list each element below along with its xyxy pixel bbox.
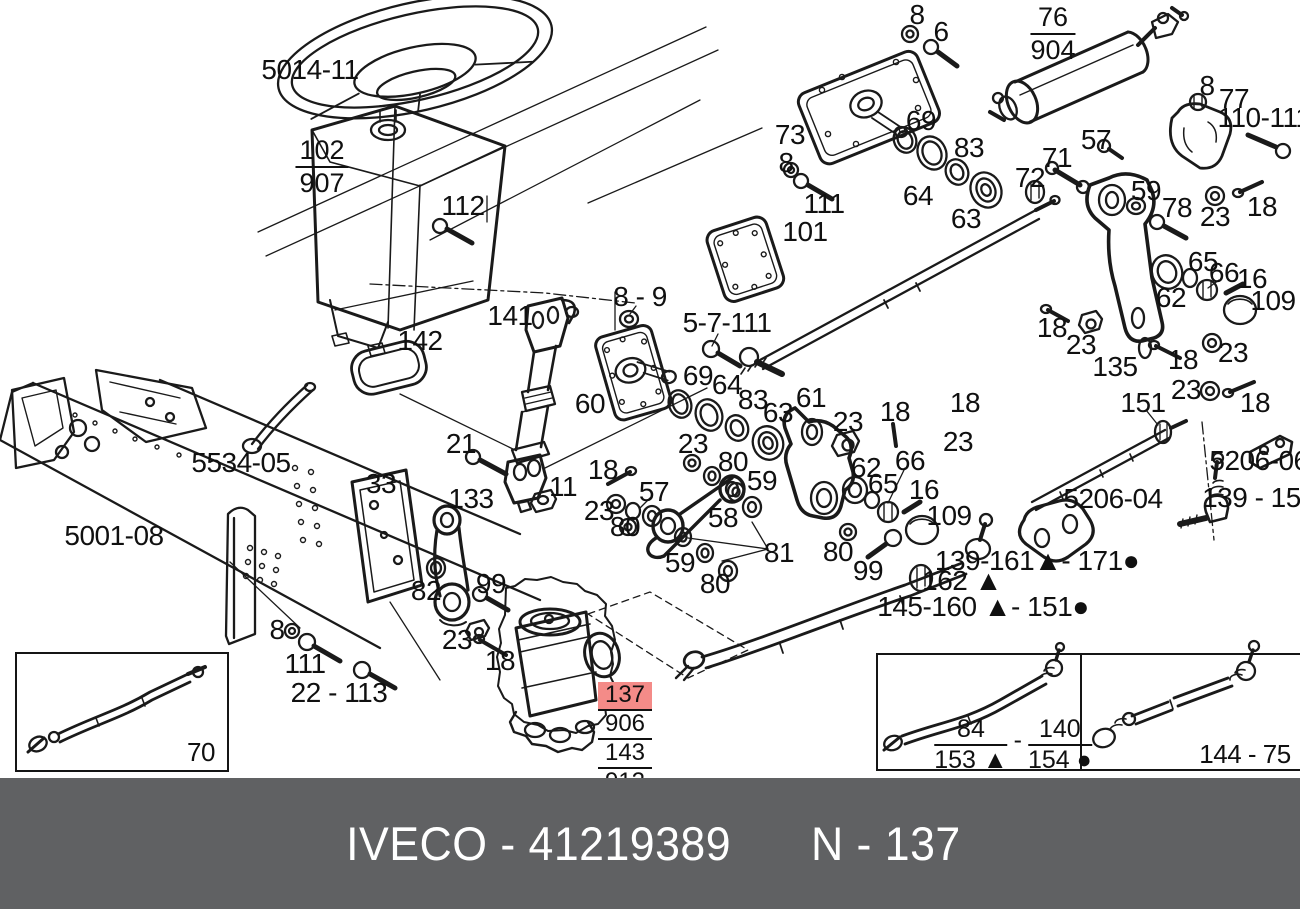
- part-label: 59: [747, 467, 777, 495]
- part-label: 23: [833, 408, 863, 436]
- part-label: 69: [683, 362, 713, 390]
- inset-part-fraction: 84 153 ▲ - 140 154 ●: [934, 716, 1092, 774]
- part-label: 73: [775, 121, 805, 149]
- part-label: 5206-06: [1209, 447, 1300, 475]
- fraction-denominator: 904: [1030, 35, 1075, 64]
- part-number-row: 143: [598, 740, 652, 769]
- part-label: 6: [933, 18, 948, 46]
- part-label: 59: [665, 549, 695, 577]
- part-label: 80: [610, 513, 640, 541]
- part-label: 141: [487, 302, 532, 330]
- part-label: 59: [1131, 177, 1161, 205]
- part-label: 18: [1240, 389, 1270, 417]
- part-label: 18: [1247, 193, 1277, 221]
- part-label: 5-7-111: [683, 309, 772, 337]
- fraction-numerator: 76: [1030, 3, 1075, 35]
- part-label: 135: [1092, 353, 1137, 381]
- part-label: 18: [1037, 314, 1067, 342]
- part-label: 63: [763, 399, 793, 427]
- part-label: 18: [1168, 346, 1198, 374]
- part-label: 60: [575, 390, 605, 418]
- part-label: 5014-11: [261, 56, 358, 84]
- part-label: 99: [853, 557, 883, 585]
- part-label: 80: [700, 570, 730, 598]
- part-label: 8 - 9: [613, 283, 667, 311]
- part-label: 8: [1199, 72, 1214, 100]
- part-label: 144 - 75: [1199, 741, 1290, 767]
- part-label: 111: [284, 650, 325, 678]
- part-label: 22 - 113: [291, 679, 388, 707]
- part-label: 71: [1042, 144, 1072, 172]
- part-label: 139 - 152: [1202, 484, 1300, 512]
- part-label: 58: [708, 504, 738, 532]
- fraction-right-num: 140: [1028, 716, 1092, 746]
- part-label: 69: [906, 107, 936, 135]
- link-133-drawing: [434, 506, 469, 625]
- washer-8-9: [620, 311, 638, 327]
- part-label: 81: [764, 539, 794, 567]
- part-label: 133: [448, 485, 493, 513]
- banner-part-number: IVECO - 41219389: [346, 816, 731, 871]
- banner-figure-number: N - 137: [811, 816, 961, 871]
- part-label: 18: [950, 389, 980, 417]
- part-label: 23: [1200, 203, 1230, 231]
- part-label: 18: [588, 456, 618, 484]
- fraction-left: 84 153 ▲: [934, 716, 1007, 774]
- fraction-right: 140 154 ●: [1028, 716, 1092, 774]
- part-label: 23: [1171, 376, 1201, 404]
- part-label: 151: [1120, 389, 1165, 417]
- part-label: 11: [549, 473, 577, 501]
- part-label: 21: [446, 430, 476, 458]
- fraction-numerator: 102: [295, 136, 348, 168]
- part-label: 65: [868, 470, 898, 498]
- part-label: 23: [442, 626, 472, 654]
- part-label: 23: [1218, 339, 1248, 367]
- part-label: 5534-05: [191, 449, 290, 477]
- part-label: 99: [476, 570, 506, 598]
- part-label: 70: [187, 739, 215, 765]
- fraction-denominator: 907: [295, 168, 348, 197]
- highlighted-part-number: 137: [598, 682, 652, 711]
- washer-8-9-inner: [625, 316, 633, 323]
- part-label: 64: [903, 182, 933, 210]
- part-label-fraction: 102907: [295, 136, 348, 198]
- part-label: 72: [1015, 164, 1045, 192]
- part-label: 109: [1250, 287, 1295, 315]
- part-label: 109: [926, 502, 971, 530]
- part-label: 80: [823, 538, 853, 566]
- part-label: 62: [1156, 284, 1186, 312]
- fraction-left-num: 84: [934, 716, 1007, 746]
- mount-plate-101-drawing: [704, 214, 786, 304]
- servo-cylinder-drawing: [990, 8, 1188, 128]
- fraction-separator: -: [1014, 726, 1022, 755]
- fraction-right-den: 154 ●: [1028, 746, 1092, 773]
- part-label: 5206-04: [1063, 485, 1162, 513]
- part-label: 18: [880, 398, 910, 426]
- part-label: 8: [778, 149, 793, 177]
- part-label: 57: [1081, 126, 1111, 154]
- part-label: 5001-08: [64, 522, 163, 550]
- part-label: 110-111: [1217, 104, 1300, 132]
- part-label: 112: [441, 192, 484, 220]
- part-label: 83: [954, 134, 984, 162]
- part-label: 145-160 ▲- 151●: [877, 593, 1088, 621]
- part-label: 8: [909, 1, 924, 29]
- parts-diagram-page: 137906143912 84 153 ▲ - 140 154 ● 5014-1…: [0, 0, 1300, 909]
- part-label: 57: [639, 478, 669, 506]
- part-label: 78: [1162, 194, 1192, 222]
- part-label: 139-161▲- 171●: [935, 547, 1139, 575]
- part-label: 63: [951, 205, 981, 233]
- part-label: 82: [411, 577, 441, 605]
- part-label: 23: [943, 428, 973, 456]
- part-label: 142: [397, 327, 442, 355]
- part-label: 111: [803, 190, 844, 218]
- title-banner: IVECO - 41219389 N - 137: [0, 778, 1300, 909]
- part-label: 23: [678, 430, 708, 458]
- part-label: 33: [366, 470, 396, 498]
- part-label: 66: [895, 447, 925, 475]
- fraction-left-den: 153 ▲: [934, 746, 1007, 773]
- part-label-fraction: 76904: [1030, 3, 1075, 65]
- part-label: 8: [269, 616, 284, 644]
- part-number-row: 906: [598, 711, 652, 740]
- part-label: 61: [796, 384, 826, 412]
- part-label: 18: [485, 647, 515, 675]
- part-label: 101: [782, 218, 827, 246]
- part-label: 80: [718, 448, 748, 476]
- part-label: 66: [1209, 259, 1239, 287]
